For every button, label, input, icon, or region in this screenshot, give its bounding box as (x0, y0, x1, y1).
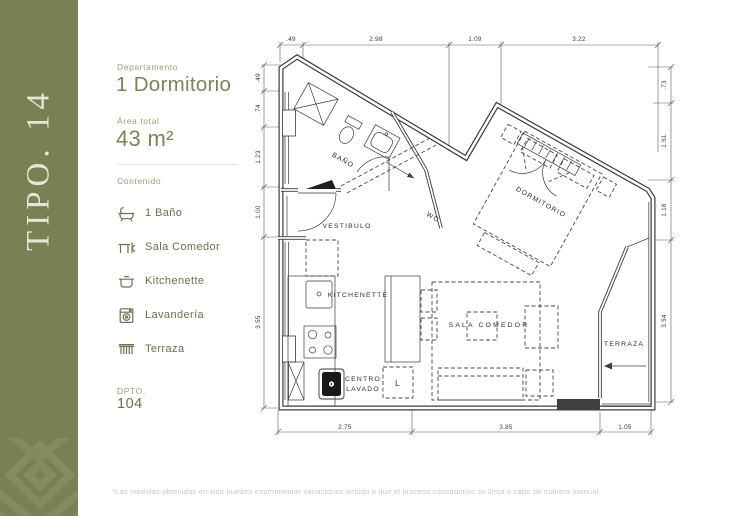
laundry-symbol: L (395, 379, 401, 388)
dim-bottom-1: 2.75 (338, 424, 352, 431)
room-label-living: SALA COMEDOR (449, 322, 530, 329)
room-label-kitchen: KITCHENETTE (328, 292, 388, 299)
dim-top-1: .49 (286, 36, 296, 43)
dim-right-4: 3.54 (661, 314, 668, 328)
dim-left-3: 1.23 (255, 150, 262, 164)
dim-left-1: .49 (255, 73, 262, 83)
dim-bottom-2: 3.85 (499, 424, 513, 431)
dim-top-3: 1.09 (468, 36, 482, 43)
dim-top-2: 2.98 (369, 36, 383, 43)
room-label-hall: VESTIBULO (323, 223, 372, 230)
floor-plan: .49 2.98 1.09 3.22 2.75 3.85 1.05 .49 .7… (0, 0, 730, 516)
dim-right-1: .73 (661, 80, 668, 90)
terrace-threshold (557, 399, 600, 410)
room-label-laundry-2: LAVADO (346, 386, 380, 393)
washing-machine (319, 369, 344, 399)
room-label-terrace: TERRAZA (604, 341, 644, 348)
dim-right-3: 1.18 (661, 203, 668, 217)
exterior-walls (281, 57, 653, 408)
dim-left-4: 1.00 (255, 205, 262, 219)
dim-left-5: 3.55 (255, 315, 262, 329)
dim-top-4: 3.22 (572, 36, 586, 43)
brochure-page: { "sidebar": { "vertical_title": "TIPO. … (0, 0, 730, 516)
dim-left-2: .74 (255, 104, 262, 114)
disclaimer-text: *Las medidas obtenidas en sitio pueden e… (112, 487, 601, 496)
room-label-laundry-1: CENTRO (345, 376, 381, 383)
dim-bottom-3: 1.05 (618, 424, 632, 431)
dim-right-2: 1.61 (661, 134, 668, 148)
